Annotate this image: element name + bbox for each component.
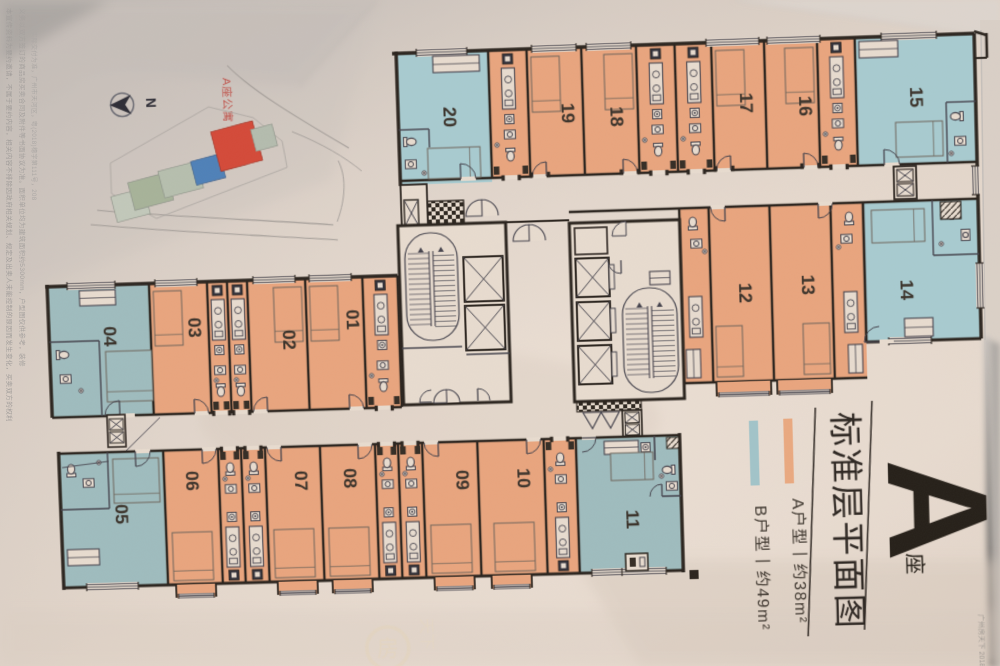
svg-text:本宣传资料为要约邀请，不属于要约内容，相关内容不排除因政府相: 本宣传资料为要约邀请，不属于要约内容，相关内容不排除因政府相关规划、规定及出卖人… — [5, 8, 14, 422]
svg-text:标准以实际交付为准，广州市天河区，粤(2018)穗字第111: 标准以实际交付为准，广州市天河区，粤(2018)穗字第111号，208 — [30, 12, 38, 201]
svg-text:义务以双方签订的商品房买卖合同及附件等书面协议为准。面积单位: 义务以双方签订的商品房买卖合同及附件等书面协议为准。面积单位均为建筑面积约530… — [18, 8, 27, 367]
